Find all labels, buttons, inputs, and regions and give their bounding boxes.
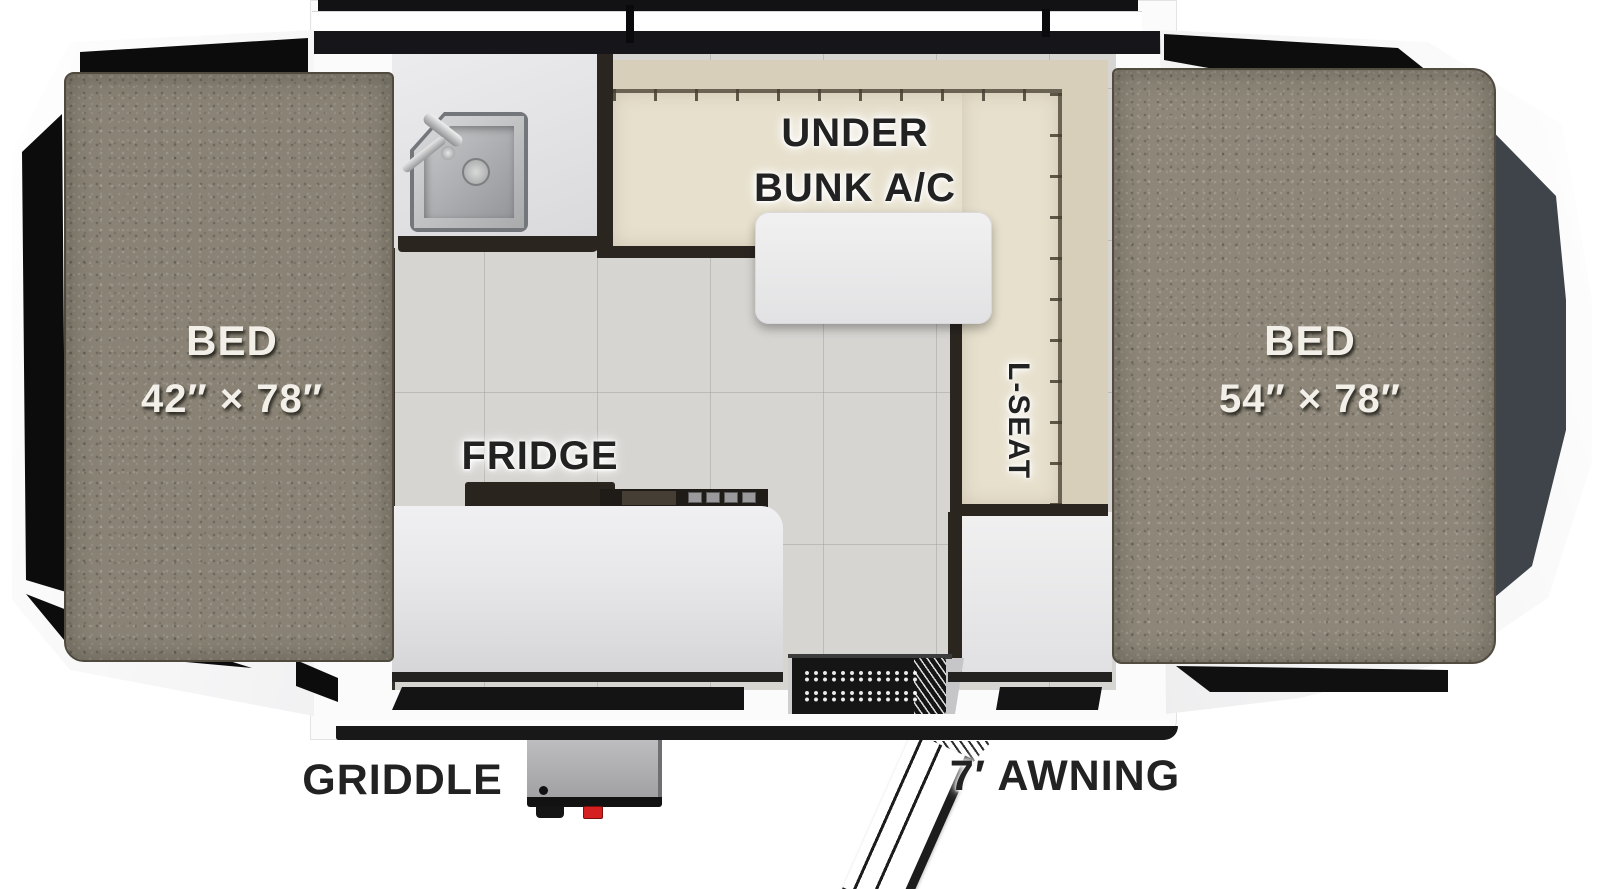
under-bunk-ac-label: UNDER BUNK A/C (705, 106, 1005, 216)
bed-right-label-line2: 54″ × 78″ (1120, 370, 1500, 428)
bench-backrest-right (1062, 60, 1108, 510)
cooktop-knob-icon (724, 492, 738, 503)
step-mat-dots (804, 690, 922, 703)
door-swing-hatch (914, 658, 946, 714)
bed-left-label: BED 42″ × 78″ (62, 312, 402, 428)
bed-right-label-line1: BED (1120, 312, 1500, 370)
cooktop-icon (465, 482, 615, 507)
roof-white-band (312, 11, 1142, 33)
bench-front-trim (950, 504, 1108, 516)
roof-latch-icon (1042, 9, 1050, 37)
roof-front-trim (318, 0, 1138, 11)
under-bunk-ac-line1: UNDER (705, 106, 1005, 161)
faucet-cap-icon (441, 146, 455, 160)
sink-counter-trim (398, 236, 600, 252)
bed-right-label: BED 54″ × 78″ (1120, 312, 1500, 428)
cooktop-knob-icon (742, 492, 756, 503)
bench-seam-ticks (613, 89, 1062, 101)
entry-step-mat-icon (788, 658, 946, 714)
awning-label: 7′ AWNING (945, 752, 1185, 801)
sink-drain-icon (462, 158, 490, 186)
cooktop-knob-icon (706, 492, 720, 503)
cabinet-base-trim (948, 672, 1112, 682)
fridge-label: FRIDGE (415, 434, 665, 479)
floorplan-canvas: BED 42″ × 78″ BED 54″ × 78″ UNDER BUNK A… (0, 0, 1600, 889)
sink-counter-trim (597, 54, 613, 258)
griddle-tab (536, 806, 564, 818)
bed-left-label-line2: 42″ × 78″ (62, 370, 402, 428)
griddle-label: GRIDDLE (280, 756, 525, 805)
cooktop-burner-icon (622, 491, 676, 505)
roof-latch-icon (626, 5, 634, 43)
roof-rear-trim (298, 31, 1170, 54)
griddle-valve-icon (583, 806, 603, 819)
l-seat-label: L-SEAT (995, 348, 1041, 494)
under-bunk-ac-line2: BUNK A/C (705, 161, 1005, 216)
dinette-table (755, 212, 992, 324)
bench-seam-ticks (1050, 93, 1062, 504)
cooktop-knob-icon (688, 492, 702, 503)
entry-cabinet-trim (948, 512, 962, 672)
entry-cabinet (962, 512, 1112, 672)
bed-left-label-line1: BED (62, 312, 402, 370)
counter-base-trim (392, 672, 783, 682)
step-mat-dots (804, 670, 922, 683)
step-mat-edge (788, 658, 792, 714)
fridge-counter (392, 506, 783, 672)
body-bottom-trim (336, 726, 1178, 740)
griddle-dot (539, 786, 548, 795)
